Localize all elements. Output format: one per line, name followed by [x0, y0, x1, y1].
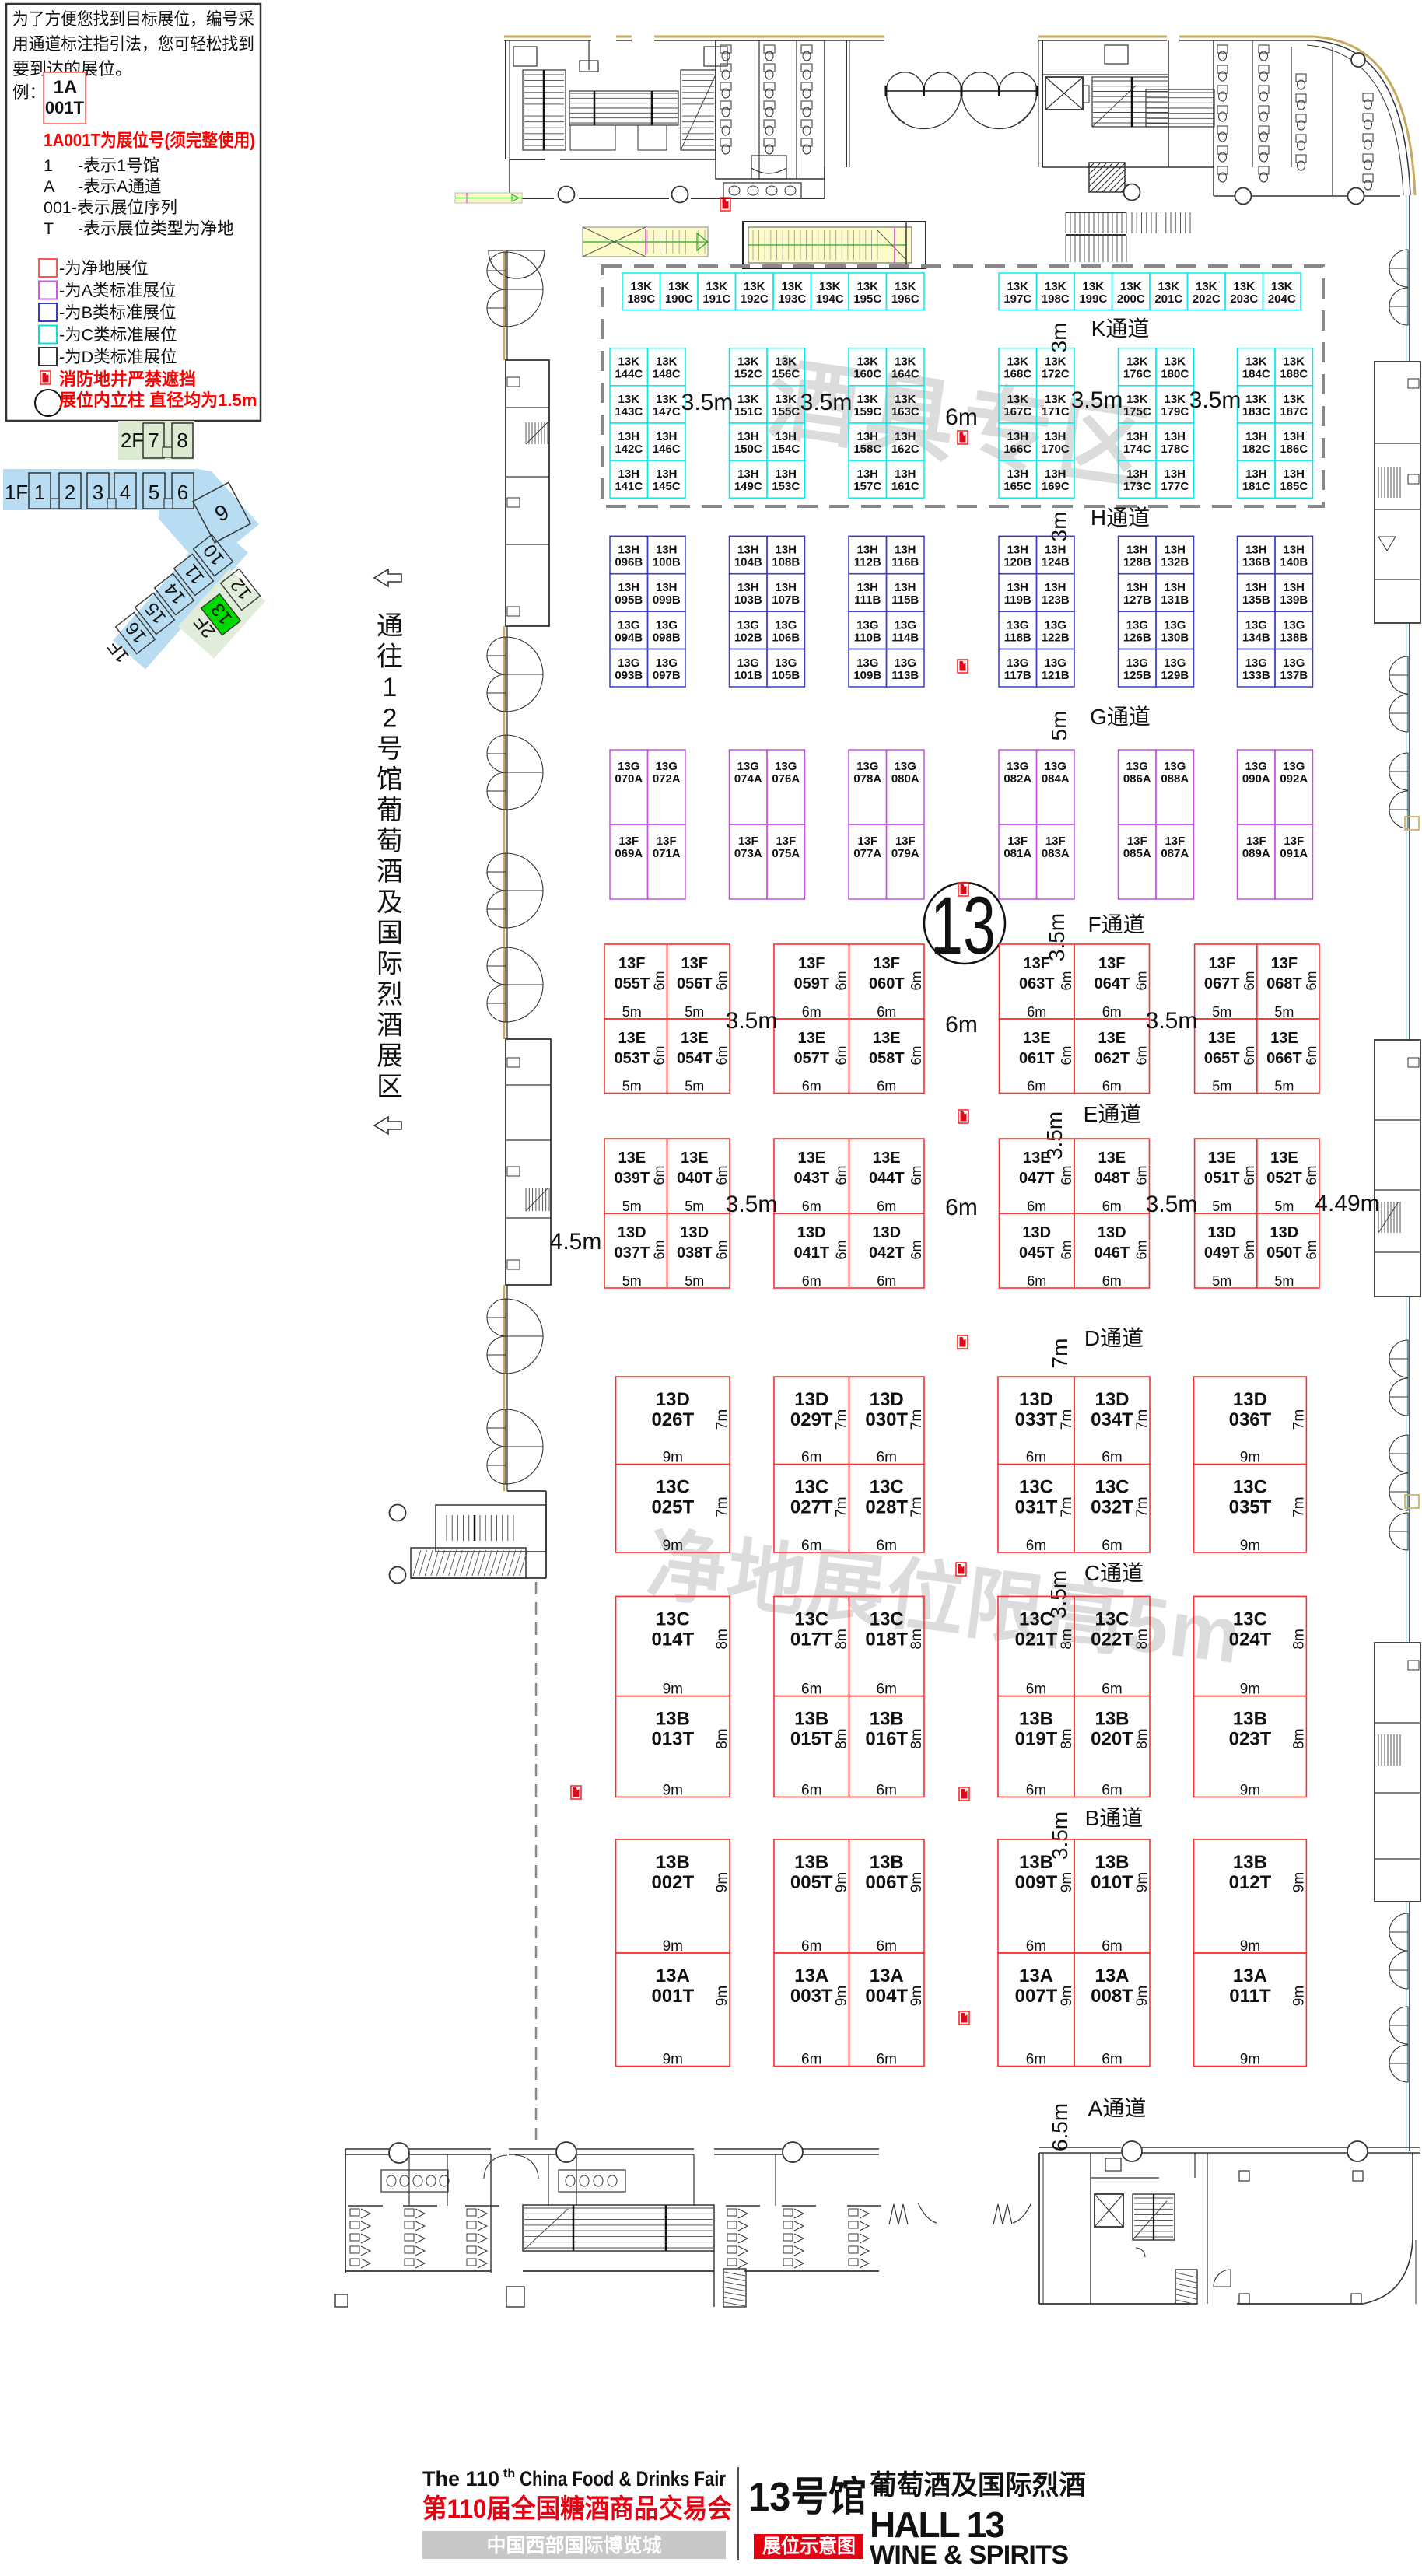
svg-text:-表示展位类型为净地: -表示展位类型为净地: [78, 219, 234, 238]
svg-text:13G: 13G: [737, 760, 759, 773]
svg-text:6m: 6m: [834, 1165, 849, 1185]
svg-text:A: A: [44, 177, 55, 196]
svg-text:13B: 13B: [656, 1852, 690, 1873]
svg-text:172C: 172C: [1042, 368, 1070, 381]
svg-text:13G: 13G: [1126, 760, 1148, 773]
svg-text:174C: 174C: [1123, 443, 1151, 456]
svg-text:6m: 6m: [714, 1165, 730, 1185]
svg-text:13G: 13G: [1283, 618, 1305, 632]
svg-text:13H: 13H: [1245, 544, 1267, 557]
svg-text:13B: 13B: [1019, 1709, 1053, 1730]
svg-text:th: th: [503, 2467, 515, 2480]
svg-text:043T: 043T: [793, 1170, 829, 1187]
svg-text:5m: 5m: [1047, 711, 1071, 741]
svg-text:6m: 6m: [1242, 1045, 1257, 1065]
svg-text:050T: 050T: [1266, 1244, 1302, 1262]
svg-text:8m: 8m: [1059, 1629, 1075, 1649]
svg-text:13H: 13H: [656, 544, 678, 557]
svg-text:-表示A通道: -表示A通道: [78, 177, 162, 196]
svg-text:107B: 107B: [772, 593, 800, 607]
svg-text:13G: 13G: [737, 618, 759, 632]
svg-text:6m: 6m: [834, 1045, 849, 1065]
svg-text:176C: 176C: [1123, 368, 1151, 381]
svg-text:037T: 037T: [614, 1244, 650, 1262]
svg-text:026T: 026T: [651, 1409, 694, 1430]
svg-text:13E: 13E: [873, 1150, 901, 1167]
svg-text:6m: 6m: [714, 971, 730, 990]
svg-text:127B: 127B: [1123, 593, 1151, 607]
svg-text:6m: 6m: [877, 1782, 897, 1798]
svg-text:13K: 13K: [1007, 393, 1028, 406]
svg-text:033T: 033T: [1015, 1409, 1058, 1430]
svg-text:13H: 13H: [775, 430, 797, 443]
svg-text:154C: 154C: [772, 443, 800, 456]
svg-text:A通道: A通道: [1088, 2096, 1147, 2120]
svg-text:13C: 13C: [1019, 1477, 1053, 1498]
svg-text:080A: 080A: [891, 772, 919, 786]
svg-text:090A: 090A: [1242, 772, 1270, 786]
svg-text:13G: 13G: [1045, 656, 1066, 670]
svg-text:4: 4: [120, 481, 131, 504]
svg-text:13H: 13H: [1007, 544, 1028, 557]
svg-text:6m: 6m: [1102, 1938, 1122, 1955]
svg-text:13K: 13K: [1245, 355, 1267, 369]
svg-text:6m: 6m: [1102, 2052, 1122, 2068]
svg-text:消防地井严禁遮挡: 消防地井严禁遮挡: [59, 369, 196, 389]
svg-text:13C: 13C: [1233, 1477, 1267, 1498]
svg-text:6m: 6m: [1059, 1165, 1074, 1185]
svg-text:13F: 13F: [1246, 835, 1266, 848]
svg-text:179C: 179C: [1161, 405, 1189, 418]
svg-text:13A: 13A: [656, 1965, 690, 1986]
svg-text:6m: 6m: [801, 1782, 821, 1798]
svg-text:13K: 13K: [1196, 280, 1217, 293]
svg-text:192C: 192C: [741, 292, 769, 306]
svg-text:166C: 166C: [1003, 443, 1031, 456]
svg-text:6m: 6m: [1102, 1079, 1122, 1094]
svg-text:13K: 13K: [1045, 280, 1066, 293]
svg-text:9m: 9m: [1134, 1872, 1151, 1892]
svg-text:5m: 5m: [622, 1199, 642, 1214]
svg-text:13H: 13H: [1283, 581, 1305, 594]
svg-text:9m: 9m: [663, 1938, 683, 1955]
svg-text:用通道标注指引法，您可轻松找到: 用通道标注指引法，您可轻松找到: [12, 34, 254, 54]
svg-text:034T: 034T: [1091, 1409, 1133, 1430]
svg-text:9m: 9m: [663, 2052, 683, 2068]
svg-text:157C: 157C: [853, 480, 881, 493]
svg-text:070A: 070A: [615, 772, 643, 786]
svg-text:13G: 13G: [656, 656, 678, 670]
svg-text:8m: 8m: [1291, 1728, 1307, 1748]
svg-text:122B: 122B: [1042, 631, 1070, 644]
svg-text:13A: 13A: [1019, 1965, 1053, 1986]
svg-text:例：: 例：: [12, 83, 46, 102]
svg-text:13K: 13K: [856, 393, 878, 406]
svg-text:葡: 葡: [377, 796, 403, 825]
svg-text:8: 8: [177, 429, 187, 452]
svg-text:13G: 13G: [775, 656, 797, 670]
svg-text:13K: 13K: [895, 280, 916, 293]
svg-text:13H: 13H: [1164, 544, 1186, 557]
svg-text:6m: 6m: [909, 971, 924, 990]
svg-text:13F: 13F: [1098, 955, 1125, 972]
svg-text:13K: 13K: [775, 355, 797, 369]
svg-text:13E: 13E: [1098, 1030, 1126, 1047]
svg-text:6m: 6m: [1102, 1682, 1122, 1698]
svg-text:号: 号: [377, 734, 403, 764]
svg-text:13G: 13G: [1007, 618, 1028, 632]
svg-text:029T: 029T: [790, 1409, 833, 1430]
svg-text:093B: 093B: [615, 669, 643, 682]
svg-text:6m: 6m: [1026, 1538, 1046, 1554]
svg-text:156C: 156C: [772, 368, 800, 381]
svg-text:8m: 8m: [714, 1728, 730, 1748]
svg-text:13B: 13B: [794, 1852, 828, 1873]
svg-text:9m: 9m: [1134, 1986, 1151, 2006]
svg-text:13D: 13D: [1098, 1224, 1126, 1241]
svg-text:5m: 5m: [685, 1079, 704, 1094]
svg-text:13C: 13C: [1095, 1608, 1129, 1629]
svg-text:124B: 124B: [1042, 556, 1070, 569]
svg-text:6m: 6m: [1026, 1450, 1046, 1466]
svg-text:177C: 177C: [1161, 480, 1189, 493]
svg-text:展位示意图: 展位示意图: [762, 2535, 856, 2557]
svg-text:13E: 13E: [1270, 1150, 1298, 1167]
svg-text:6m: 6m: [877, 1079, 896, 1094]
svg-text:126B: 126B: [1123, 631, 1151, 644]
svg-text:125B: 125B: [1123, 669, 1151, 682]
svg-text:13G: 13G: [775, 760, 797, 773]
svg-text:13H: 13H: [1045, 581, 1066, 594]
svg-text:092A: 092A: [1280, 772, 1308, 786]
svg-text:062T: 062T: [1094, 1050, 1130, 1067]
svg-text:9m: 9m: [909, 1986, 925, 2006]
svg-text:13G: 13G: [737, 656, 759, 670]
svg-text:6m: 6m: [801, 2052, 821, 2068]
svg-text:7m: 7m: [909, 1409, 925, 1430]
svg-text:3.5m: 3.5m: [726, 1192, 778, 1217]
svg-text:为了方便您找到目标展位，编号采: 为了方便您找到目标展位，编号采: [12, 9, 254, 29]
svg-text:103B: 103B: [734, 593, 762, 607]
svg-text:147C: 147C: [653, 405, 681, 418]
svg-text:6m: 6m: [945, 404, 978, 430]
svg-text:099B: 099B: [653, 593, 681, 607]
svg-text:137B: 137B: [1280, 669, 1308, 682]
svg-text:014T: 014T: [651, 1629, 694, 1650]
svg-text:13H: 13H: [1126, 467, 1148, 481]
svg-text:3.5m: 3.5m: [800, 390, 853, 415]
svg-text:118B: 118B: [1004, 631, 1031, 644]
svg-text:191C: 191C: [702, 292, 730, 306]
svg-text:6m: 6m: [1059, 1240, 1074, 1259]
svg-text:046T: 046T: [1094, 1244, 1130, 1262]
svg-text:6.5m: 6.5m: [1048, 2103, 1072, 2151]
svg-text:3.5m: 3.5m: [1146, 1192, 1198, 1217]
svg-text:13D: 13D: [794, 1389, 828, 1410]
svg-text:5m: 5m: [1274, 1004, 1294, 1020]
svg-text:13H: 13H: [775, 544, 797, 557]
svg-text:13H: 13H: [618, 467, 639, 481]
svg-text:13号馆: 13号馆: [748, 2475, 867, 2520]
svg-text:9m: 9m: [663, 1450, 683, 1466]
svg-text:13F: 13F: [1024, 955, 1050, 972]
svg-text:142C: 142C: [615, 443, 643, 456]
svg-text:6m: 6m: [802, 1079, 821, 1094]
svg-text:13H: 13H: [1045, 467, 1066, 481]
svg-text:109B: 109B: [853, 669, 881, 682]
svg-text:13E: 13E: [618, 1150, 646, 1167]
svg-text:113B: 113B: [891, 669, 919, 682]
svg-text:13B: 13B: [1233, 1852, 1267, 1873]
svg-text:13H: 13H: [775, 467, 797, 481]
svg-text:13K: 13K: [1126, 393, 1148, 406]
svg-text:5m: 5m: [685, 1199, 704, 1214]
svg-text:024T: 024T: [1229, 1629, 1272, 1650]
svg-text:13K: 13K: [737, 393, 759, 406]
svg-text:1: 1: [44, 156, 53, 175]
svg-text:H通道: H通道: [1091, 506, 1150, 530]
svg-text:13C: 13C: [656, 1477, 690, 1498]
svg-text:13E: 13E: [1098, 1150, 1126, 1167]
svg-text:13H: 13H: [856, 467, 878, 481]
svg-text:9m: 9m: [714, 1872, 730, 1892]
svg-text:HALL 13: HALL 13: [870, 2504, 1005, 2545]
svg-text:13C: 13C: [1233, 1608, 1267, 1629]
svg-text:B通道: B通道: [1085, 1806, 1144, 1830]
svg-text:101B: 101B: [734, 669, 762, 682]
svg-text:008T: 008T: [1091, 1986, 1133, 2007]
svg-text:6m: 6m: [1059, 1045, 1074, 1065]
svg-text:13E: 13E: [1208, 1150, 1236, 1167]
svg-text:064T: 064T: [1094, 975, 1130, 992]
svg-text:108B: 108B: [772, 556, 800, 569]
svg-text:13K: 13K: [856, 355, 878, 369]
svg-text:123B: 123B: [1042, 593, 1070, 607]
svg-text:081A: 081A: [1003, 847, 1031, 860]
svg-text:13E: 13E: [1270, 1030, 1298, 1047]
svg-text:065T: 065T: [1204, 1050, 1240, 1067]
svg-text:144C: 144C: [615, 368, 643, 381]
svg-text:7m: 7m: [714, 1409, 730, 1430]
svg-text:6m: 6m: [1059, 971, 1074, 990]
svg-text:095B: 095B: [615, 593, 643, 607]
svg-text:13D: 13D: [872, 1224, 901, 1241]
svg-text:13G: 13G: [1045, 760, 1066, 773]
svg-text:13B: 13B: [1095, 1709, 1129, 1730]
svg-text:196C: 196C: [891, 292, 919, 306]
svg-text:6m: 6m: [877, 1004, 896, 1020]
svg-text:9m: 9m: [1240, 1782, 1260, 1798]
svg-text:13B: 13B: [1019, 1852, 1053, 1873]
svg-text:The 110: The 110: [422, 2467, 499, 2490]
svg-text:075A: 075A: [772, 847, 800, 860]
svg-text:13H: 13H: [895, 430, 916, 443]
svg-text:13F: 13F: [776, 835, 796, 848]
svg-text:167C: 167C: [1003, 405, 1031, 418]
svg-text:13E: 13E: [1023, 1150, 1051, 1167]
svg-text:13G: 13G: [618, 656, 639, 670]
svg-text:045T: 045T: [1019, 1244, 1055, 1262]
svg-text:7: 7: [148, 429, 159, 452]
svg-text:13D: 13D: [1095, 1389, 1129, 1410]
svg-text:13D: 13D: [1270, 1224, 1299, 1241]
svg-text:13D: 13D: [618, 1224, 646, 1241]
svg-text:13B: 13B: [794, 1709, 828, 1730]
svg-text:2: 2: [383, 704, 398, 733]
svg-text:106B: 106B: [772, 631, 800, 644]
svg-text:110B: 110B: [854, 631, 881, 644]
svg-text:13C: 13C: [870, 1477, 904, 1498]
svg-text:13G: 13G: [1245, 656, 1267, 670]
svg-text:163C: 163C: [891, 405, 919, 418]
svg-text:5m: 5m: [1274, 1199, 1294, 1214]
svg-text:8m: 8m: [834, 1629, 850, 1649]
svg-text:8m: 8m: [834, 1728, 850, 1748]
svg-text:5m: 5m: [622, 1079, 642, 1094]
svg-text:030T: 030T: [865, 1409, 908, 1430]
svg-text:6m: 6m: [652, 1045, 667, 1065]
svg-text:13E: 13E: [873, 1030, 901, 1047]
svg-text:128B: 128B: [1123, 556, 1151, 569]
svg-text:13D: 13D: [1019, 1389, 1053, 1410]
svg-text:中国西部国际博览城: 中国西部国际博览城: [486, 2534, 661, 2557]
svg-text:K通道: K通道: [1091, 317, 1150, 341]
svg-text:1F: 1F: [5, 481, 28, 504]
svg-text:13G: 13G: [1126, 656, 1148, 670]
svg-text:展位内立柱 直径均为1.5m: 展位内立柱 直径均为1.5m: [59, 390, 257, 410]
svg-text:203C: 203C: [1230, 292, 1258, 306]
svg-text:13G: 13G: [895, 656, 916, 670]
svg-text:13H: 13H: [656, 430, 678, 443]
svg-text:042T: 042T: [869, 1244, 905, 1262]
svg-text:063T: 063T: [1019, 975, 1055, 992]
svg-text:13H: 13H: [737, 430, 759, 443]
svg-text:13C: 13C: [794, 1477, 828, 1498]
svg-text:13G: 13G: [1164, 618, 1186, 632]
svg-text:13H: 13H: [1245, 467, 1267, 481]
svg-text:100B: 100B: [653, 556, 681, 569]
svg-text:6m: 6m: [909, 1165, 924, 1185]
svg-text:13B: 13B: [1233, 1709, 1267, 1730]
svg-text:7m: 7m: [1059, 1496, 1075, 1517]
svg-text:G通道: G通道: [1090, 705, 1151, 729]
svg-text:175C: 175C: [1123, 405, 1151, 418]
svg-text:13D: 13D: [1022, 1224, 1051, 1241]
svg-text:13H: 13H: [1045, 544, 1066, 557]
svg-text:T: T: [44, 219, 54, 238]
svg-text:13G: 13G: [1283, 656, 1305, 670]
svg-text:6m: 6m: [1102, 1538, 1122, 1554]
svg-text:13F: 13F: [1208, 955, 1235, 972]
svg-text:13G: 13G: [1283, 760, 1305, 773]
svg-text:13D: 13D: [656, 1389, 690, 1410]
svg-text:084A: 084A: [1042, 772, 1070, 786]
svg-text:6m: 6m: [802, 1273, 821, 1289]
svg-text:010T: 010T: [1091, 1872, 1133, 1893]
svg-text:023T: 023T: [1229, 1729, 1272, 1750]
svg-text:13K: 13K: [1283, 393, 1305, 406]
svg-text:3.5m: 3.5m: [1146, 1008, 1198, 1034]
svg-text:5m: 5m: [1212, 1079, 1231, 1094]
svg-text:13K: 13K: [856, 280, 878, 293]
svg-text:展: 展: [377, 1041, 403, 1071]
svg-text:053T: 053T: [614, 1050, 650, 1067]
svg-text:016T: 016T: [865, 1729, 908, 1750]
svg-text:017T: 017T: [790, 1629, 833, 1650]
svg-text:9m: 9m: [1059, 1872, 1075, 1892]
svg-text:051T: 051T: [1204, 1170, 1240, 1187]
svg-text:151C: 151C: [734, 405, 762, 418]
svg-text:4.49m: 4.49m: [1315, 1191, 1379, 1216]
svg-text:141C: 141C: [615, 480, 643, 493]
svg-text:082A: 082A: [1003, 772, 1031, 786]
svg-text:6m: 6m: [1102, 1273, 1122, 1289]
svg-text:5m: 5m: [1274, 1273, 1294, 1289]
svg-text:5m: 5m: [1212, 1199, 1231, 1214]
svg-text:13H: 13H: [656, 581, 678, 594]
svg-text:021T: 021T: [1015, 1629, 1058, 1650]
svg-text:6m: 6m: [1027, 1079, 1046, 1094]
svg-text:6m: 6m: [1026, 2052, 1046, 2068]
svg-text:187C: 187C: [1280, 405, 1308, 418]
svg-text:13G: 13G: [1245, 618, 1267, 632]
svg-text:140B: 140B: [1280, 556, 1308, 569]
svg-text:143C: 143C: [615, 405, 643, 418]
svg-text:6m: 6m: [1026, 1782, 1046, 1798]
svg-text:152C: 152C: [734, 368, 762, 381]
svg-text:001T: 001T: [651, 1986, 694, 2007]
svg-text:072A: 072A: [653, 772, 681, 786]
svg-text:170C: 170C: [1042, 443, 1070, 456]
svg-text:6m: 6m: [1242, 971, 1257, 990]
svg-text:2: 2: [65, 481, 75, 504]
svg-text:6: 6: [177, 481, 188, 504]
svg-text:13B: 13B: [1095, 1852, 1129, 1873]
svg-text:13E: 13E: [618, 1030, 646, 1047]
svg-text:13H: 13H: [1045, 430, 1066, 443]
svg-text:13G: 13G: [856, 760, 878, 773]
svg-text:13C: 13C: [656, 1608, 690, 1629]
svg-text:13B: 13B: [870, 1852, 904, 1873]
svg-text:13E: 13E: [681, 1030, 709, 1047]
svg-text:9m: 9m: [1240, 2052, 1260, 2068]
svg-text:13H: 13H: [1164, 430, 1186, 443]
svg-text:009T: 009T: [1015, 1872, 1058, 1893]
svg-text:13C: 13C: [794, 1608, 828, 1629]
svg-text:-表示1号馆: -表示1号馆: [78, 156, 159, 175]
svg-text:13G: 13G: [895, 618, 916, 632]
svg-text:9m: 9m: [1240, 1538, 1260, 1554]
svg-text:13C: 13C: [1095, 1477, 1129, 1498]
svg-text:7m: 7m: [834, 1409, 850, 1430]
svg-text:139B: 139B: [1280, 593, 1308, 607]
svg-text:9m: 9m: [1240, 1450, 1260, 1466]
svg-text:8m: 8m: [714, 1629, 730, 1649]
svg-text:9m: 9m: [1291, 1986, 1307, 2006]
svg-text:6m: 6m: [1102, 1199, 1122, 1214]
svg-text:13H: 13H: [1126, 581, 1148, 594]
svg-text:13K: 13K: [1045, 393, 1066, 406]
svg-text:13H: 13H: [1126, 544, 1148, 557]
svg-text:001-表示展位序列: 001-表示展位序列: [44, 198, 177, 217]
svg-text:184C: 184C: [1242, 368, 1270, 381]
svg-text:13H: 13H: [1245, 581, 1267, 594]
svg-text:-为C类标准展位: -为C类标准展位: [59, 326, 177, 345]
svg-text:077A: 077A: [853, 847, 881, 860]
svg-text:第110届全国糖酒商品交易会: 第110届全国糖酒商品交易会: [422, 2494, 732, 2524]
svg-text:13F: 13F: [1045, 835, 1066, 848]
svg-text:6m: 6m: [1134, 1165, 1150, 1185]
